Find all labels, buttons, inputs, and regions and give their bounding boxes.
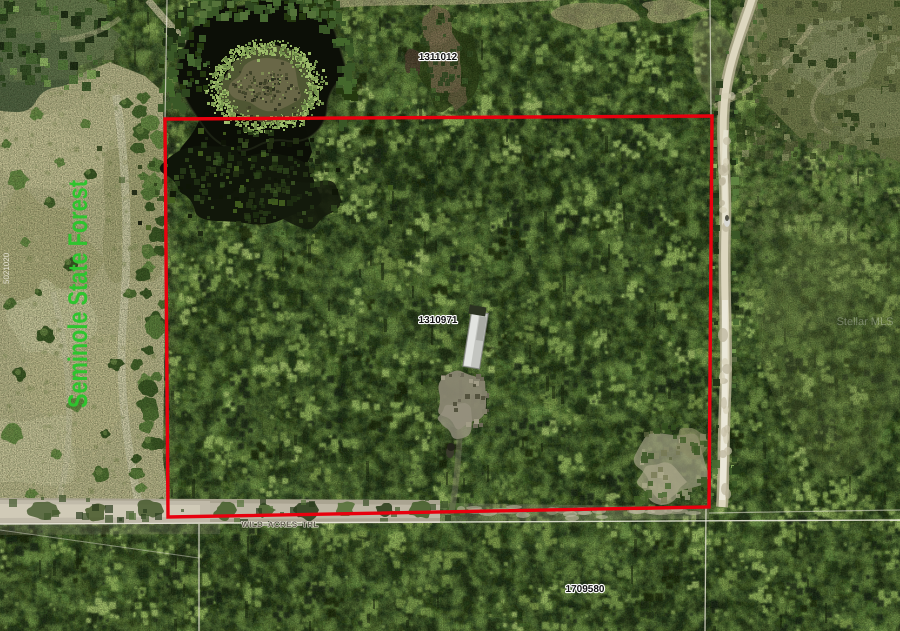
svg-text:1311012: 1311012	[419, 52, 458, 63]
svg-text:5021020: 5021020	[2, 252, 11, 284]
svg-text:Stellar MLS: Stellar MLS	[837, 316, 894, 328]
svg-text:1709580: 1709580	[566, 584, 605, 595]
svg-text:Seminole State Forest: Seminole State Forest	[63, 180, 93, 408]
svg-text:WILD–ACRES–TRL: WILD–ACRES–TRL	[241, 520, 318, 529]
svg-text:1310971: 1310971	[419, 315, 458, 326]
